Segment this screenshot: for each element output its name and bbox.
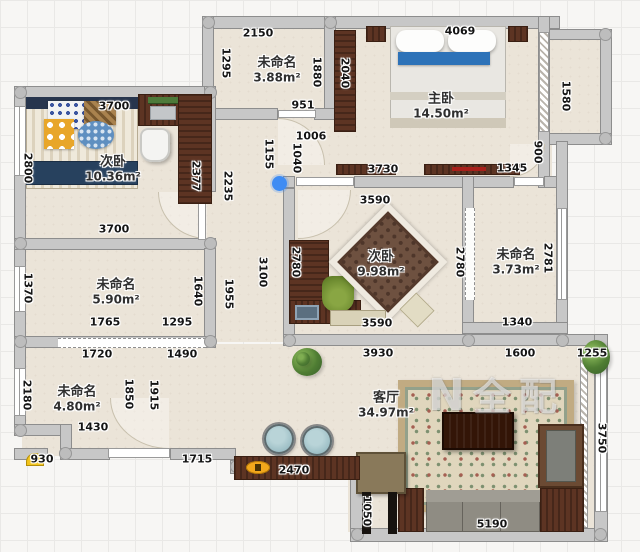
- sliding-door-room373[interactable]: [465, 208, 475, 300]
- wall-joint[interactable]: [204, 335, 217, 348]
- dimension-label[interactable]: 1765: [90, 316, 121, 329]
- desk-laptop: [295, 305, 319, 320]
- watermark-logo: N: [428, 370, 473, 421]
- room-area: 14.50m²: [413, 107, 469, 121]
- room-area: 4.80m²: [53, 400, 100, 414]
- dimension-label[interactable]: 2180: [21, 380, 34, 411]
- dimension-label[interactable]: 2235: [222, 171, 235, 202]
- dimension-label[interactable]: 3590: [362, 317, 393, 330]
- wall-bay-right[interactable]: [600, 29, 612, 145]
- room-name: 主卧: [413, 88, 469, 107]
- room-name: 未命名: [253, 52, 300, 71]
- dimension-label[interactable]: 2150: [243, 27, 274, 40]
- tv-cabinet-right[interactable]: [538, 424, 584, 488]
- wall-joint[interactable]: [462, 334, 475, 347]
- room-name: 次卧: [357, 246, 404, 265]
- entry-lamp-mark: [255, 464, 261, 471]
- dimension-label[interactable]: 1715: [182, 453, 213, 466]
- dimension-label[interactable]: 1295: [162, 316, 193, 329]
- door-master[interactable]: [514, 177, 544, 186]
- wall-joint[interactable]: [204, 237, 217, 250]
- room-label-unnamed-480[interactable]: 未命名 4.80m²: [53, 381, 100, 414]
- wall-joint[interactable]: [14, 237, 27, 250]
- dimension-label[interactable]: 3590: [360, 194, 391, 207]
- dimension-label[interactable]: 1370: [22, 273, 35, 304]
- pillow-round-blue: [78, 121, 114, 149]
- dimension-label[interactable]: 2780: [454, 247, 467, 278]
- wall-joint[interactable]: [599, 132, 612, 145]
- wall-room590-right[interactable]: [204, 248, 216, 348]
- tv-screen: [546, 430, 576, 482]
- room-label-secondary-1036[interactable]: 次卧 10.36m²: [85, 151, 141, 184]
- room-name: 未命名: [53, 381, 100, 400]
- room-label-unnamed-590[interactable]: 未命名 5.90m²: [92, 274, 139, 307]
- dimension-label[interactable]: 1255: [577, 347, 608, 360]
- entry-lamp-icon[interactable]: [246, 461, 270, 474]
- door-room998[interactable]: [296, 177, 354, 186]
- dimension-label[interactable]: 1340: [502, 316, 533, 329]
- room-name: 未命名: [492, 244, 539, 263]
- dimension-label[interactable]: 3930: [363, 347, 394, 360]
- dimension-label[interactable]: 1915: [148, 380, 161, 411]
- dimension-label[interactable]: 4069: [445, 25, 476, 38]
- wall-joint[interactable]: [59, 447, 72, 460]
- dimension-label[interactable]: 1050: [361, 496, 374, 527]
- stool-round-1[interactable]: [264, 424, 294, 454]
- master-window-curtain[interactable]: [539, 32, 549, 132]
- room-label-living[interactable]: 客厅 34.97m²: [358, 387, 414, 420]
- room-area: 5.90m²: [92, 293, 139, 307]
- dimension-label[interactable]: 1345: [497, 162, 528, 175]
- nightstand-left[interactable]: [366, 26, 386, 42]
- dimension-label[interactable]: 900: [532, 141, 545, 164]
- room-name: 次卧: [85, 151, 141, 170]
- dimension-label[interactable]: 3750: [596, 423, 609, 454]
- plant-corridor[interactable]: [296, 352, 310, 366]
- floor-bay-window-top: [548, 36, 604, 136]
- wall-joint[interactable]: [202, 16, 215, 29]
- nightstand-right[interactable]: [508, 26, 528, 42]
- dimension-label[interactable]: 2040: [339, 58, 352, 89]
- dimension-label[interactable]: 930: [31, 453, 54, 466]
- side-cabinet-left[interactable]: [398, 488, 424, 532]
- dimension-label[interactable]: 2780: [290, 247, 303, 278]
- dimension-label[interactable]: 1006: [296, 130, 327, 143]
- wall-joint[interactable]: [556, 334, 569, 347]
- selected-vertex[interactable]: [272, 176, 287, 191]
- wall-bedroom1036-bottom[interactable]: [14, 238, 216, 250]
- dimension-label[interactable]: 1490: [167, 348, 198, 361]
- room-label-secondary-998[interactable]: 次卧 9.98m²: [357, 246, 404, 279]
- dimension-label[interactable]: 3100: [257, 257, 270, 288]
- wall-corridor-top[interactable]: [354, 176, 514, 188]
- dimension-label[interactable]: 1430: [78, 421, 109, 434]
- wall-joint[interactable]: [283, 334, 296, 347]
- watermark-text: 全配: [473, 375, 565, 419]
- dimension-label[interactable]: 3730: [368, 163, 399, 176]
- room-area: 9.98m²: [357, 265, 404, 279]
- dining-chair-2[interactable]: [388, 492, 397, 534]
- wall-joint[interactable]: [14, 335, 27, 348]
- side-cabinet-right[interactable]: [540, 488, 584, 532]
- dimension-label[interactable]: 3700: [99, 100, 130, 113]
- room-area: 10.36m²: [85, 170, 141, 184]
- dimension-label[interactable]: 2781: [542, 243, 555, 274]
- wall-joint[interactable]: [594, 528, 607, 541]
- room-label-unnamed-373[interactable]: 未命名 3.73m²: [492, 244, 539, 277]
- door-entry[interactable]: [108, 448, 170, 458]
- app-watermark: N全配: [428, 366, 565, 421]
- wall-joint[interactable]: [14, 424, 27, 437]
- room-name: 客厅: [358, 387, 414, 406]
- bed-master-pillow-left: [396, 30, 444, 52]
- opening-room590[interactable]: [58, 338, 206, 348]
- dining-table[interactable]: [356, 452, 406, 494]
- room-name: 未命名: [92, 274, 139, 293]
- dimension-label[interactable]: 2800: [22, 153, 35, 184]
- dimension-label[interactable]: 1580: [560, 81, 573, 112]
- dimension-label[interactable]: 5190: [477, 518, 508, 531]
- dimension-label[interactable]: 1955: [223, 279, 236, 310]
- dimension-label[interactable]: 1295: [220, 48, 233, 79]
- dimension-label[interactable]: 1720: [82, 348, 113, 361]
- dimension-label[interactable]: 1850: [123, 379, 136, 410]
- wall-joint[interactable]: [599, 28, 612, 41]
- room-area: 3.88m²: [253, 71, 300, 85]
- dimension-label[interactable]: 1155: [263, 139, 276, 170]
- room-area: 3.73m²: [492, 263, 539, 277]
- desk-monitor: [148, 97, 178, 103]
- sofa-seat-edge: [426, 490, 540, 502]
- tv-master: [452, 167, 486, 171]
- dimension-label[interactable]: 2470: [279, 464, 310, 477]
- pillow-yellow: [44, 119, 74, 149]
- dimension-label[interactable]: 1880: [311, 57, 324, 88]
- wall-living-top[interactable]: [283, 334, 596, 346]
- dimension-label[interactable]: 2377: [190, 161, 203, 192]
- dimension-label[interactable]: 1040: [291, 143, 304, 174]
- floorplan-canvas: 未命名 3.88m² 主卧 14.50m² 次卧 10.36m² 次卧 9.98…: [0, 0, 640, 552]
- office-chair[interactable]: [140, 128, 170, 162]
- room-label-master[interactable]: 主卧 14.50m²: [413, 88, 469, 121]
- dimension-label[interactable]: 1600: [505, 347, 536, 360]
- dimension-label[interactable]: 3700: [99, 223, 130, 236]
- dimension-label[interactable]: 951: [292, 99, 315, 112]
- desk-keyboard: [150, 106, 176, 120]
- window-room373[interactable]: [557, 208, 567, 300]
- stool-round-2[interactable]: [302, 426, 332, 456]
- wall-room388-bottom-r[interactable]: [314, 108, 336, 120]
- dimension-label[interactable]: 1640: [192, 276, 205, 307]
- room-label-unnamed-388[interactable]: 未命名 3.88m²: [253, 52, 300, 85]
- bed-master-runner-blue: [398, 52, 490, 65]
- wall-joint[interactable]: [324, 16, 337, 29]
- room-area: 34.97m²: [358, 406, 414, 420]
